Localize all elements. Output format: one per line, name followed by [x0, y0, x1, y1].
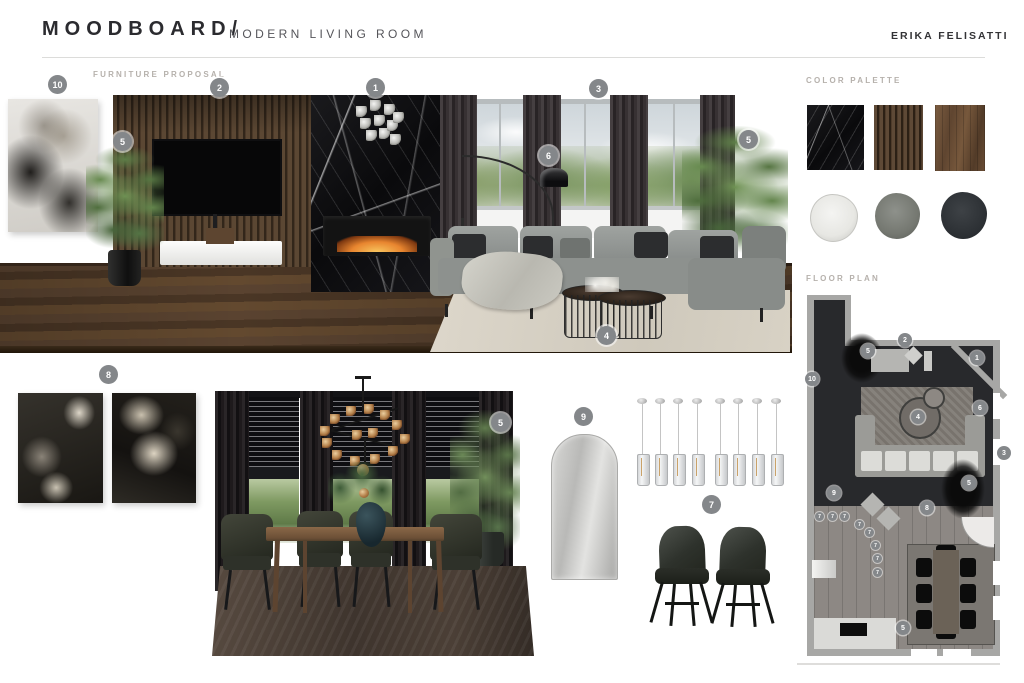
plan-sofa-cushion	[909, 451, 930, 471]
bar-stool	[655, 526, 711, 624]
pendant-filament	[775, 458, 776, 476]
pendant-glass	[771, 454, 784, 486]
badge-6-arc-lamp: 6	[539, 146, 558, 165]
palm-plant-left	[86, 146, 164, 258]
pendant-light	[636, 398, 648, 488]
color-palette-label: COLOR PALETTE	[806, 76, 902, 85]
stool-leg	[669, 584, 676, 626]
plan-window	[993, 596, 1000, 620]
plan-sofa-cushion	[885, 451, 906, 471]
plan-badge-5: 5	[962, 476, 976, 490]
plan-console	[871, 349, 909, 372]
plan-wall-left	[807, 295, 814, 656]
curtain-panel	[610, 95, 648, 245]
plan-dining-chair	[960, 610, 976, 629]
material-swatch-walnut-wood	[935, 105, 985, 171]
badge-2-slat-wall: 2	[210, 78, 229, 97]
table-leg	[408, 541, 412, 613]
plan-sofa-cushion	[861, 451, 882, 471]
stool-leg	[730, 585, 737, 627]
pendant-light	[732, 398, 744, 488]
sofa-leg	[760, 308, 763, 322]
material-swatch-walnut-slats	[874, 105, 923, 170]
author-name: ERIKA FELISATTI	[891, 30, 1009, 42]
sofa-chaise	[688, 258, 785, 310]
plan-sideboard-unit	[840, 623, 867, 636]
plan-badge-7: 7	[873, 568, 882, 577]
plan-wall-bottom	[807, 649, 1000, 656]
pendant-glass	[733, 454, 746, 486]
pendant-filament	[641, 458, 642, 476]
plan-badge-5: 5	[896, 621, 910, 635]
stool-leg	[710, 583, 724, 624]
plan-badge-10: 10	[805, 372, 819, 386]
badge-9-mirror: 9	[574, 407, 593, 426]
pendant-wire	[738, 403, 739, 455]
media-console	[160, 241, 282, 265]
window-frame-top	[443, 99, 735, 104]
page-subtitle: MODERN LIVING ROOM	[229, 27, 427, 41]
stool-leg	[750, 585, 757, 627]
plan-window	[943, 649, 971, 656]
pendant-wire	[660, 403, 661, 455]
plan-dining-chair	[916, 584, 932, 603]
stool-leg	[649, 582, 663, 623]
pendant-light	[751, 398, 763, 488]
chair-leg	[263, 570, 270, 610]
plan-badge-7: 7	[840, 512, 849, 521]
plan-window	[993, 393, 1000, 419]
chair-leg	[472, 570, 479, 610]
paint-swatch-charcoal	[941, 192, 987, 239]
arched-floor-mirror	[551, 434, 618, 580]
abstract-art-large	[8, 99, 98, 232]
pendant-wire	[678, 403, 679, 455]
floor-plan-drawing: 2 5 1 10 4 6 3 5 9 8 5 7 7 7 7 7 7 7 7	[795, 293, 1017, 673]
pendant-glass	[637, 454, 650, 486]
window-mullion	[673, 99, 675, 211]
stool-leg	[760, 583, 774, 624]
paint-swatch-off-white	[810, 194, 858, 242]
table-leg	[303, 541, 307, 613]
console-wood-box	[206, 228, 234, 244]
table-flowers	[585, 277, 619, 292]
pendant-filament	[677, 458, 678, 476]
window-mullion	[584, 99, 586, 211]
plan-badge-7: 7	[815, 512, 824, 521]
badge-5-plant-right: 5	[739, 130, 758, 149]
plan-badge-6: 6	[973, 401, 987, 415]
sofa-pillow	[634, 232, 668, 258]
pendant-wire	[757, 403, 758, 455]
material-swatch-black-marble	[807, 105, 864, 170]
pendant-wire	[642, 403, 643, 455]
sofa-leg	[445, 304, 448, 317]
pendant-wire	[697, 403, 698, 455]
plan-side-unit	[924, 351, 932, 371]
plan-badge-7: 7	[865, 528, 874, 537]
arc-lamp-shade	[540, 168, 568, 187]
plan-badge-1: 1	[970, 351, 984, 365]
plan-coffee-table-small	[923, 387, 945, 409]
chair-seat	[351, 553, 391, 567]
plan-window	[993, 561, 1000, 585]
chair-seat	[223, 556, 271, 570]
blind-bottom-rail	[249, 467, 299, 479]
pendant-glass	[673, 454, 686, 486]
plan-dining-chair	[960, 584, 976, 603]
pendant-filament	[659, 458, 660, 476]
badge-5-plant-dining: 5	[491, 413, 510, 432]
plan-dining-chair	[916, 610, 932, 629]
badge-4-coffee-tables: 4	[597, 326, 616, 345]
chair-leg	[334, 567, 340, 607]
moodboard-page: MOODBOARD/ MODERN LIVING ROOM ERIKA FELI…	[0, 0, 1024, 683]
plan-shadow-line	[797, 663, 1000, 665]
chair-leg	[384, 567, 390, 607]
abstract-art-dark-1	[18, 393, 103, 503]
plan-dining-chair	[916, 558, 932, 577]
pendant-wire	[720, 403, 721, 455]
floor-plan-label: FLOOR PLAN	[806, 274, 880, 283]
glass-globe-chandelier	[348, 96, 406, 154]
plan-badge-9: 9	[827, 486, 841, 500]
pendant-filament	[756, 458, 757, 476]
stool-leg	[689, 584, 696, 626]
badge-7-bar-stools: 7	[702, 495, 721, 514]
venetian-blind	[249, 397, 299, 469]
plan-badge-2: 2	[898, 333, 912, 347]
pendant-glass	[655, 454, 668, 486]
pendant-filament	[719, 458, 720, 476]
fireplace-flame	[337, 236, 417, 252]
plant-pot	[108, 250, 141, 286]
page-title: MOODBOARD/	[42, 18, 243, 41]
pendant-wire	[776, 403, 777, 455]
abstract-art-dark-2	[112, 393, 196, 503]
furniture-proposal-label: FURNITURE PROPOSAL	[93, 70, 226, 79]
plan-dining-chair	[960, 558, 976, 577]
badge-3-curtains: 3	[589, 79, 608, 98]
pendant-filament	[737, 458, 738, 476]
dining-table	[266, 527, 444, 541]
plan-badge-7: 7	[873, 554, 882, 563]
plan-plant	[941, 459, 985, 519]
badge-10-artwork: 10	[48, 75, 67, 94]
plan-badge-4: 4	[911, 410, 925, 424]
plan-badge-7: 7	[855, 520, 864, 529]
pendant-glass	[752, 454, 765, 486]
chair-leg	[224, 570, 231, 610]
stool-footrest	[726, 603, 760, 606]
bar-stool	[716, 527, 772, 625]
plan-badge-8: 8	[920, 501, 934, 515]
pendant-light	[654, 398, 666, 488]
plan-badge-7: 7	[828, 512, 837, 521]
plan-badge-3: 3	[997, 446, 1011, 460]
pendant-glass	[715, 454, 728, 486]
header-divider	[42, 57, 985, 58]
pendant-light	[770, 398, 782, 488]
plan-dining-table	[933, 550, 959, 634]
pendant-light	[691, 398, 703, 488]
stool-footrest	[665, 602, 699, 605]
paint-swatch-warm-gray	[875, 193, 920, 239]
chair-leg	[353, 567, 359, 607]
pendant-filament	[696, 458, 697, 476]
plan-window	[911, 649, 937, 656]
pendant-light	[672, 398, 684, 488]
bubble-chandelier-bulbs	[316, 404, 416, 466]
plan-badge-5: 5	[861, 344, 875, 358]
tv-screen	[152, 139, 282, 216]
plan-wall-console	[812, 560, 836, 578]
pendant-glass	[692, 454, 705, 486]
badge-8-art-pair: 8	[99, 365, 118, 384]
plan-badge-7: 7	[871, 541, 880, 550]
badge-1-chandelier: 1	[366, 78, 385, 97]
sofa-pillow-gray	[560, 238, 590, 260]
badge-5-plant-left: 5	[113, 132, 132, 151]
pendant-light	[714, 398, 726, 488]
